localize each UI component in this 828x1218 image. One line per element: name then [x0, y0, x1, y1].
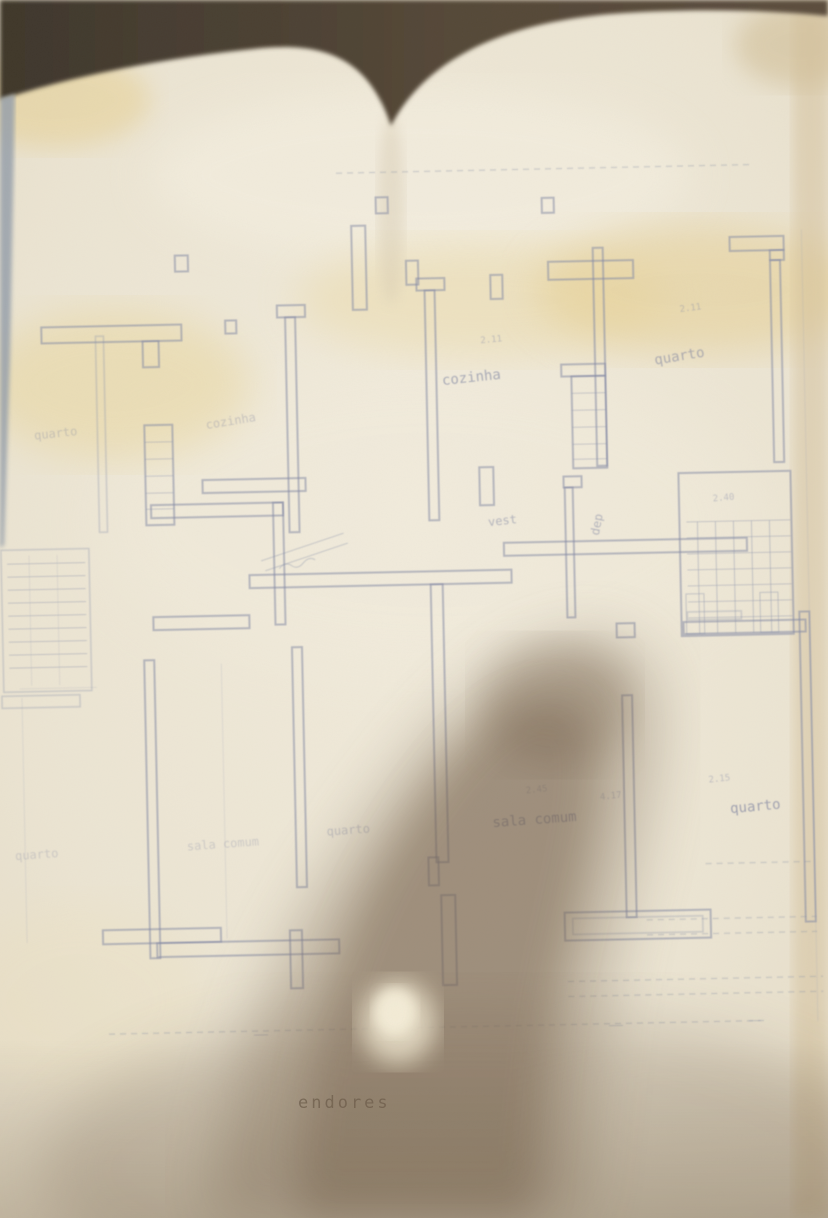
- floor-plan-photo-svg: 2.11 2.11 2.40 2.45 4.17 2.15 cozinha qu…: [0, 0, 828, 1218]
- paper-grain-overlay: [0, 0, 828, 1218]
- photographed-floor-plan: 2.11 2.11 2.40 2.45 4.17 2.15 cozinha qu…: [0, 0, 828, 1218]
